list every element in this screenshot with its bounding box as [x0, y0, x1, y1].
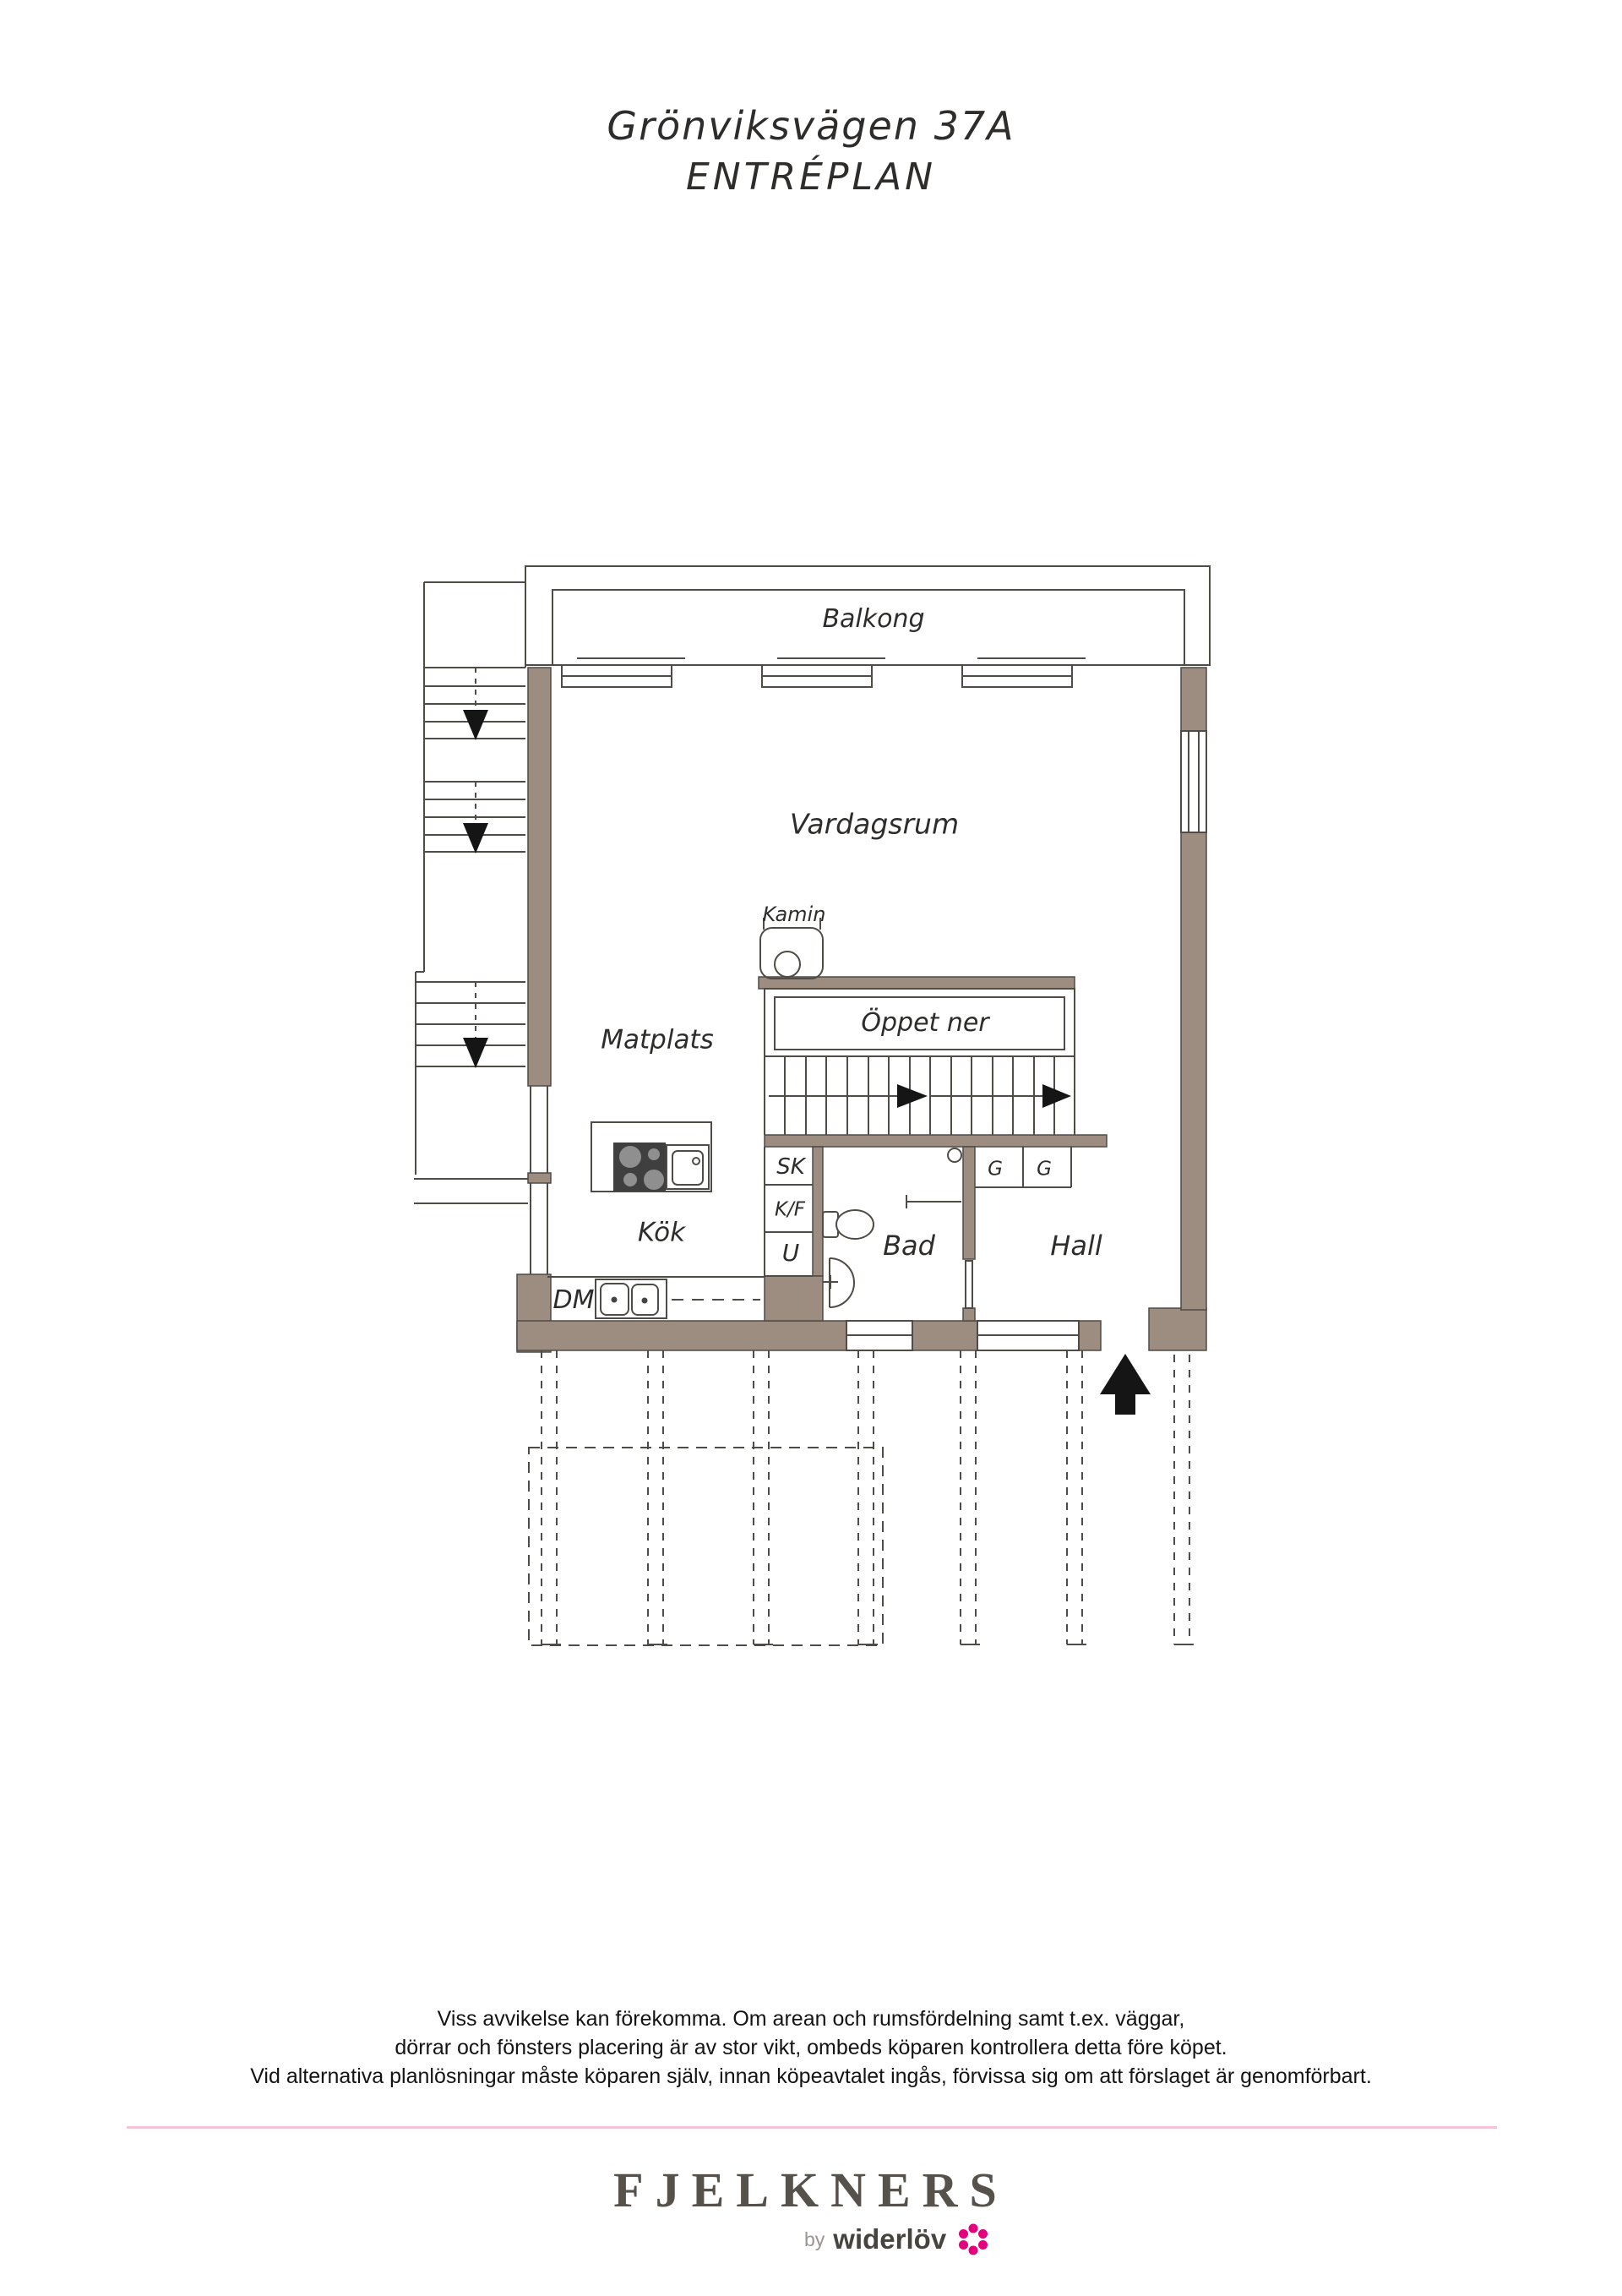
byline-prefix: by — [804, 2228, 825, 2251]
fixture-label-dm: DM — [553, 1288, 595, 1313]
foundation-dashed-lines — [529, 1350, 1194, 1645]
entrance-arrow-icon — [1100, 1354, 1151, 1415]
window-icon — [562, 658, 1086, 687]
disclaimer-line-2: dörrar och fönsters placering är av stor… — [0, 2033, 1622, 2062]
dishwasher-sinks-icon — [596, 1279, 667, 1318]
right-wall-window-icon — [1181, 731, 1206, 832]
fixture-label-g-left: G — [988, 1160, 1003, 1180]
exterior-staircase — [414, 582, 528, 1203]
disclaimer-line-1: Viss avvikelse kan förekomma. Om arean o… — [0, 2004, 1622, 2033]
kitchen-island — [591, 1122, 711, 1192]
floor-plan-page: Grönviksvägen 37A ENTRÉPLAN Balkong Vard… — [0, 0, 1622, 2296]
page-subtitle: ENTRÉPLAN — [0, 155, 1622, 199]
fixture-label-sk: SK — [776, 1156, 805, 1178]
sink-icon — [667, 1145, 709, 1189]
room-label-kok: Kök — [638, 1220, 685, 1246]
toilet-icon — [823, 1210, 874, 1239]
fixture-label-kf: K/F — [775, 1201, 805, 1220]
room-label-bad: Bad — [883, 1232, 935, 1259]
room-label-oppet-ner: Öppet ner — [861, 1011, 988, 1036]
footer-divider — [127, 2126, 1497, 2129]
left-wall-window-icon — [528, 1086, 551, 1274]
fixture-label-g-right: G — [1037, 1160, 1052, 1180]
byline-brand: widerlöv — [833, 2223, 946, 2255]
room-label-kamin: Kamin — [763, 904, 826, 924]
room-label-matplats: Matplats — [601, 1028, 714, 1054]
room-label-hall: Hall — [1050, 1232, 1102, 1259]
stair-down-arrow-icon — [463, 710, 488, 1068]
washbasin-icon — [823, 1258, 854, 1307]
brand-logo: FJELKNERS — [0, 2162, 1622, 2218]
fireplace-icon — [760, 918, 823, 979]
room-label-vardagsrum: Vardagsrum — [790, 810, 959, 838]
flower-icon — [955, 2221, 992, 2258]
byline: by widerlöv — [804, 2221, 992, 2258]
door-hinge-icon — [948, 1148, 961, 1162]
room-label-balkong: Balkong — [822, 607, 924, 632]
fixture-label-u: U — [782, 1241, 800, 1265]
page-title: Grönviksvägen 37A — [0, 103, 1622, 149]
disclaimer: Viss avvikelse kan förekomma. Om arean o… — [0, 2004, 1622, 2091]
disclaimer-line-3: Vid alternativa planlösningar måste köpa… — [0, 2062, 1622, 2091]
floor-plan-drawing — [0, 0, 1622, 2296]
